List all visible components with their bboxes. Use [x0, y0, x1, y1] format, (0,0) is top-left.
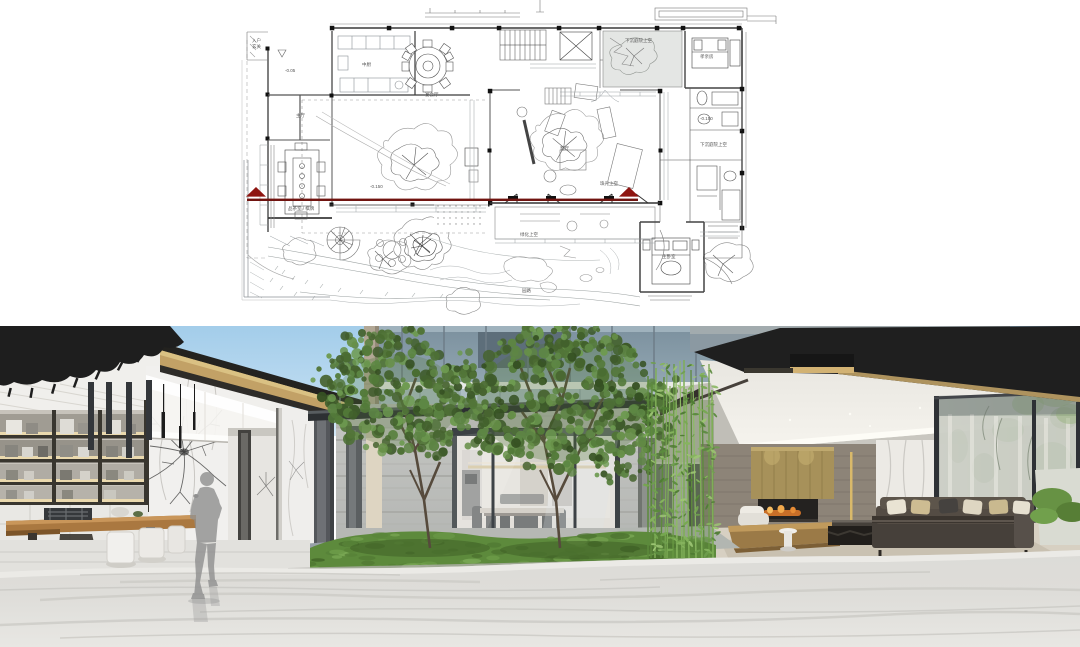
svg-text:珠光上空: 珠光上空 — [600, 180, 618, 187]
svg-text:下沉庭院上空: 下沉庭院上空 — [700, 141, 727, 148]
svg-text:主厅: 主厅 — [296, 112, 305, 118]
svg-text:绿化上空: 绿化上空 — [520, 231, 538, 238]
svg-text:客厅: 客厅 — [560, 145, 569, 152]
svg-text:中厨: 中厨 — [362, 61, 371, 68]
svg-text:品茶室 / 棋牌: 品茶室 / 棋牌 — [288, 205, 315, 212]
svg-text:-0.05: -0.05 — [285, 68, 296, 73]
svg-text:入户: 入户 — [252, 37, 261, 44]
svg-text:玄关: 玄关 — [252, 43, 261, 50]
svg-text:孝亲房: 孝亲房 — [700, 53, 714, 60]
svg-text:主卧室: 主卧室 — [662, 253, 676, 260]
svg-text:宴会厅: 宴会厅 — [425, 91, 439, 98]
svg-text:-0.150: -0.150 — [370, 184, 383, 189]
svg-text:园路: 园路 — [522, 287, 531, 294]
svg-text:下沉庭院上空: 下沉庭院上空 — [625, 37, 652, 44]
svg-text:-0.150: -0.150 — [700, 116, 713, 121]
